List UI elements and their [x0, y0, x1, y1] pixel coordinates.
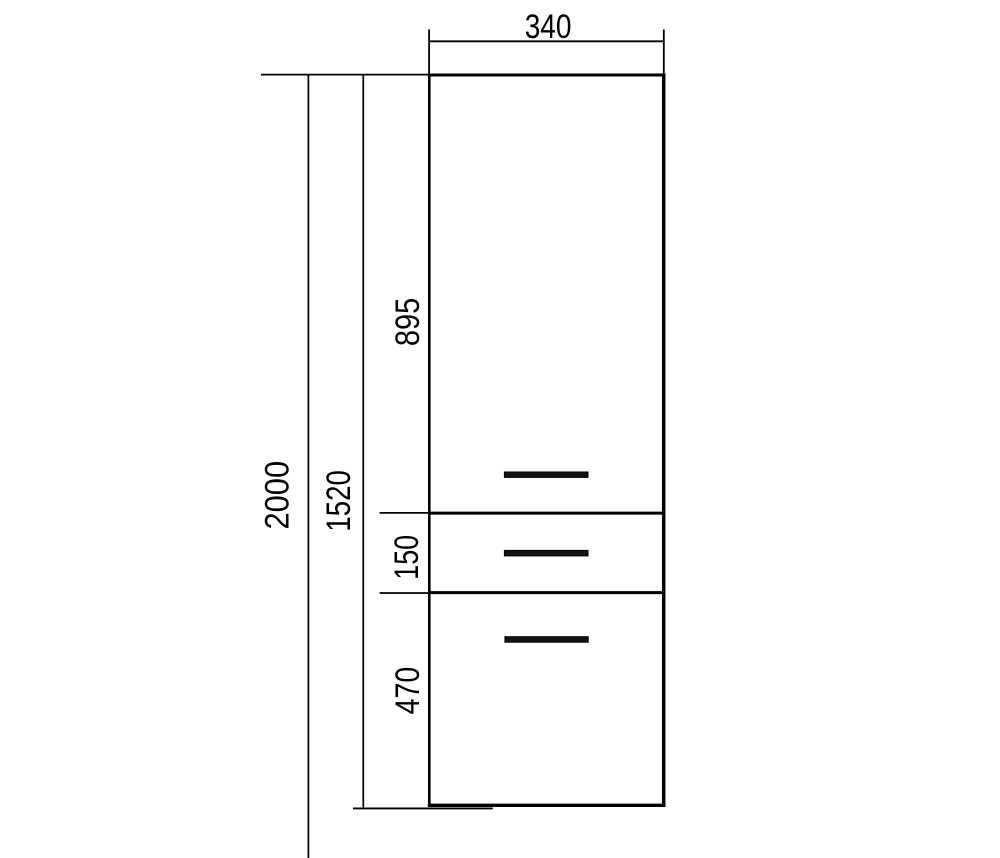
- svg-text:340: 340: [525, 7, 572, 45]
- svg-text:895: 895: [388, 298, 427, 346]
- svg-text:470: 470: [387, 667, 426, 715]
- svg-text:2000: 2000: [257, 461, 296, 530]
- svg-text:1520: 1520: [319, 470, 358, 531]
- svg-text:150: 150: [387, 535, 426, 580]
